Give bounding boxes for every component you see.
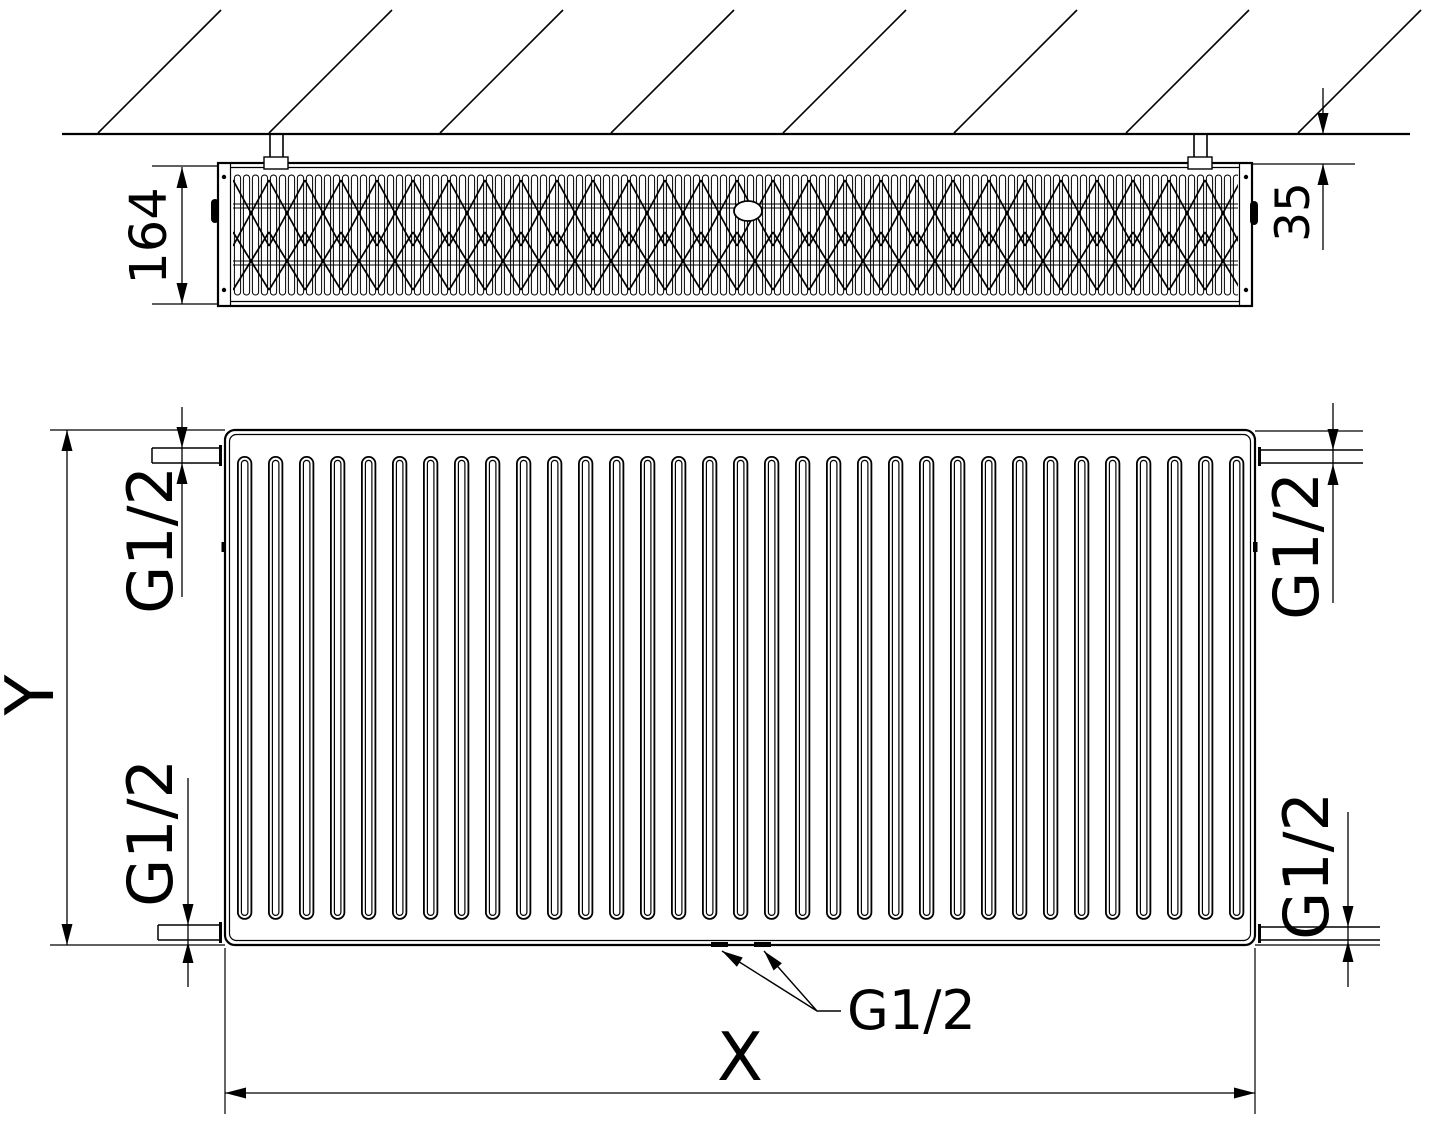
connection-stub-top-left bbox=[152, 445, 222, 466]
convector-lattice bbox=[233, 172, 1238, 298]
connection-label-bottom-center: G1/2 bbox=[847, 979, 976, 1042]
connection-label-bottom-left: G1/2 bbox=[114, 759, 187, 907]
depth-dimension-label: 164 bbox=[120, 187, 179, 284]
connection-label-bottom-right: G1/2 bbox=[1270, 792, 1343, 940]
radiator-top-view bbox=[211, 163, 1258, 306]
side-boss-right bbox=[1250, 201, 1258, 225]
dimension-connection-top-left: G1/2 bbox=[114, 407, 188, 614]
technical-drawing: 164 35 bbox=[0, 0, 1429, 1131]
connection-label-top-left: G1/2 bbox=[114, 466, 187, 614]
dimension-wall-gap: 35 bbox=[1252, 88, 1355, 250]
bottom-tapping-2 bbox=[754, 942, 771, 947]
dimension-connection-top-right: G1/2 bbox=[1255, 403, 1363, 620]
weld-nub-left bbox=[222, 542, 227, 552]
connection-stub-top-right bbox=[1258, 447, 1363, 466]
mounting-bracket-right bbox=[1188, 134, 1212, 169]
weld-nub-right bbox=[1253, 542, 1258, 552]
connection-label-top-right: G1/2 bbox=[1260, 472, 1333, 620]
side-boss-left bbox=[211, 199, 219, 223]
radiator-front-view bbox=[152, 430, 1380, 947]
dimension-width: X bbox=[225, 948, 1255, 1114]
dimension-depth: 164 bbox=[120, 166, 218, 304]
dimension-connection-bottom-left: G1/2 bbox=[114, 759, 194, 987]
radiator-dimension-drawing: 164 35 bbox=[0, 0, 1429, 1131]
connection-stub-bottom-left bbox=[158, 922, 222, 943]
panel-channels bbox=[237, 456, 1245, 922]
dimension-connection-bottom-right: G1/2 bbox=[1255, 792, 1380, 987]
wall-hatching bbox=[98, 10, 1421, 133]
tapping-detail bbox=[734, 201, 762, 221]
wall-gap-dimension-label: 35 bbox=[1266, 182, 1321, 242]
mounting-bracket-left bbox=[264, 134, 288, 169]
dimension-height: Y bbox=[0, 430, 225, 945]
width-dimension-label: X bbox=[717, 1018, 763, 1096]
height-dimension-label: Y bbox=[0, 673, 69, 716]
bottom-tapping-1 bbox=[711, 942, 728, 947]
